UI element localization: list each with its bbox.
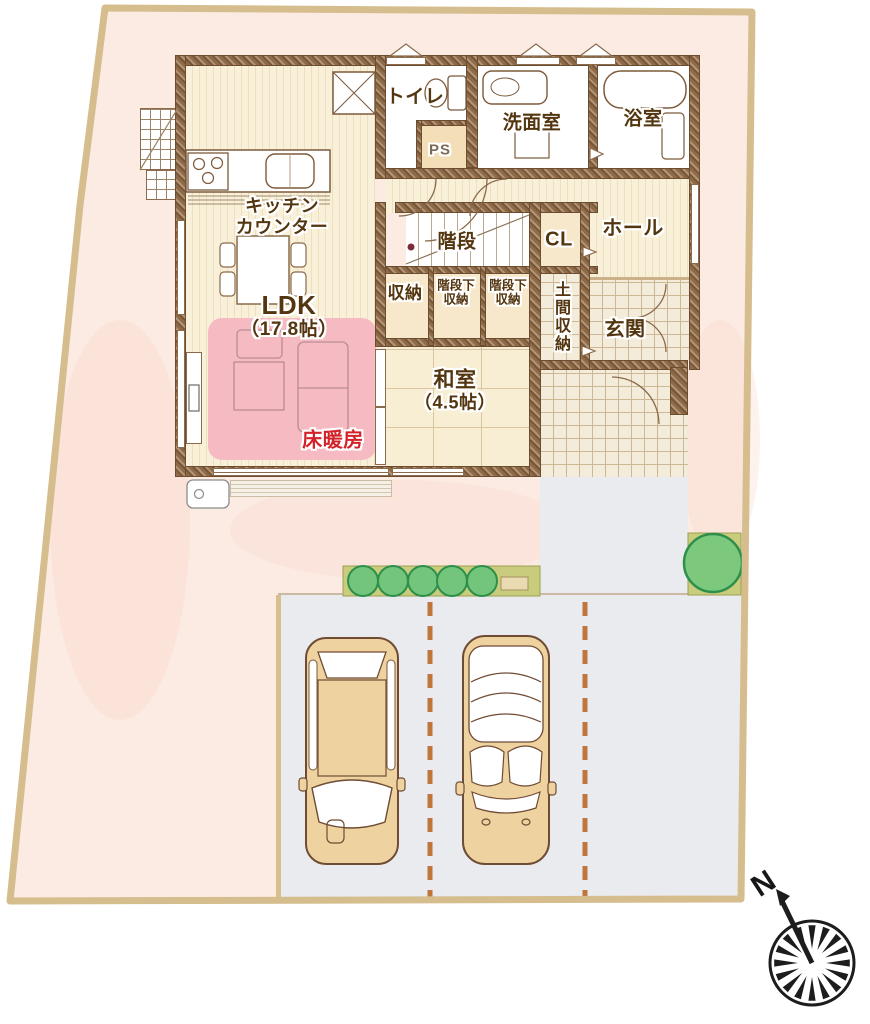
label-hall: ホール [602,212,664,241]
label-usl-line1: 階段下 [437,279,475,293]
bush-icon [378,566,408,596]
window-top-toilet [386,57,426,65]
garden-stone [501,577,528,590]
label-japanese-line2: （4.5帖） [414,392,496,415]
label-ps: PS [429,142,451,159]
label-bathroom: 浴室 [623,104,662,131]
wall-hall-left [580,202,590,370]
car-1 [299,638,405,864]
label-usr-line1: 階段下 [489,279,527,293]
label-toilet: トイレ [386,82,445,109]
wall-stairs-bottom [375,266,598,274]
wall-toilet-washroom [466,55,478,168]
service-tile-pad-small [146,170,178,200]
wall-ps-top [416,120,466,126]
entrance-step-line [590,277,689,280]
yard-texture [50,320,190,720]
service-tile-pad [140,108,178,170]
window-left-lower [177,330,185,448]
label-usr-line2: 収納 [489,293,527,307]
label-under-stairs-right: 階段下 収納 [489,279,527,308]
wall-ldk-toilet [375,55,386,179]
floor-plan-canvas: トイレ PS 洗面室 浴室 ホール 階段 CL キッチン カウンター 収納 階段… [0,0,870,1024]
wall-stairs-top [395,202,598,213]
bush-icon [408,566,438,596]
sliding-door-japanese-2 [375,407,386,465]
wall-storage-divider-2 [480,266,486,346]
window-left-upper [177,220,185,315]
tv-board [186,352,202,444]
wall-entrance-bottom [531,360,688,370]
label-closet-cl: CL [545,229,573,252]
sliding-door-japanese-1 [375,349,386,407]
label-storage: 収納 [388,279,423,304]
label-usl-line2: 収納 [437,293,475,307]
entrance-porch [541,370,688,477]
wall-sanitary-bottom [375,168,700,179]
wall-washroom-bath [588,55,598,168]
label-under-stairs-left: 階段下 収納 [437,279,475,308]
label-ldk-line1: LDK [240,292,337,318]
window-top-washroom [516,57,560,65]
window-top-bath [576,57,616,65]
walkway-pavement [540,477,688,594]
label-entrance: 玄関 [605,313,646,342]
bush-icon [348,566,378,596]
wood-deck-step [230,480,392,497]
label-ldk: LDK （17.8帖） [240,292,337,342]
label-ldk-line2: （17.8帖） [240,318,337,342]
wall-ldk-storage [375,202,386,347]
car-2 [456,636,556,864]
wall-center-vertical [529,202,541,477]
label-floor-heating: 床暖房 [302,424,364,453]
label-kitchen-line2: カウンター [236,217,329,238]
label-washroom: 洗面室 [503,108,562,135]
wall-ps-left [416,120,422,168]
wall-storage-divider-1 [428,266,434,346]
window-ldk-sliding [213,468,389,476]
compass-rose [770,889,854,1005]
window-japanese-sliding [392,468,464,476]
yard-parking-divider [276,595,281,899]
wall-porch-stub [670,367,688,415]
label-doma-storage: 土間収納 [552,281,568,353]
wall-top [175,55,700,66]
window-right-hall [691,184,699,264]
label-japanese-room: 和室 （4.5帖） [414,370,496,415]
wall-japanese-top [375,338,540,347]
label-kitchen-line1: キッチン [236,196,329,217]
label-japanese-line1: 和室 [414,370,496,392]
bush-icon [437,566,467,596]
bush-icon [467,566,497,596]
label-kitchen-counter: キッチン カウンター [236,196,329,238]
label-stairs: 階段 [437,227,476,254]
garden-tree-icon [684,534,742,592]
